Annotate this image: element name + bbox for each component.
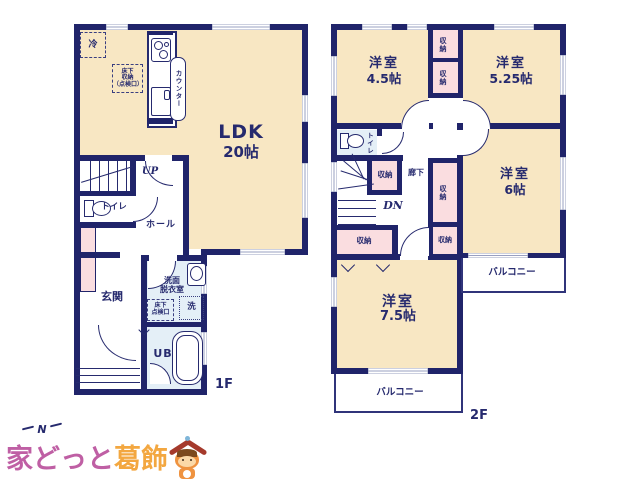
- ldk-room-area-lower: [189, 155, 302, 249]
- north-mark: N: [20, 418, 64, 436]
- fridge-space: 冷: [80, 32, 106, 58]
- balcony-label: バルコニー: [365, 388, 435, 399]
- counter: カウンター: [170, 57, 186, 121]
- washroom-label: 洗面 脱衣室: [150, 276, 194, 294]
- wall: [177, 255, 207, 261]
- storage-label: 収納: [346, 237, 382, 246]
- room-7_5-label: 洋室 7.5帖: [356, 294, 440, 325]
- stairs-2f: [338, 193, 376, 225]
- entrance-step-line: [76, 368, 140, 369]
- north-mark-stroke: [50, 423, 62, 428]
- floorplan-canvas: カウンター 冷 床下 収納 （点検口） 床下 点検口 洗 LDK 20帖 UP …: [0, 0, 640, 480]
- room-7_5-size: 7.5帖: [356, 310, 440, 325]
- wall: [74, 24, 80, 395]
- wall: [428, 222, 460, 227]
- stove-burner-icon: [154, 41, 163, 50]
- wall: [302, 24, 308, 255]
- wall: [74, 252, 120, 258]
- window: [560, 157, 566, 210]
- wall: [74, 222, 136, 228]
- wall: [428, 93, 463, 98]
- counter-label: カウンター: [173, 70, 183, 108]
- wall: [183, 155, 189, 255]
- room-6-size: 6帖: [475, 183, 555, 197]
- mascot-flower: [185, 436, 190, 441]
- storage-label: 収納: [439, 65, 447, 90]
- inspection-hatch-box: 床下 点検口: [147, 299, 174, 321]
- window: [302, 95, 308, 122]
- window: [362, 24, 392, 30]
- hallway-label: 廊下: [402, 168, 430, 177]
- window: [331, 277, 337, 307]
- fridge-label: 冷: [88, 40, 97, 50]
- toilet-label-2f: トイレ: [365, 131, 372, 155]
- door-arc-toilet: [133, 197, 158, 222]
- room-5_25-size: 5.25帖: [471, 72, 551, 86]
- stairs-1f: [82, 161, 132, 191]
- underfloor-storage-box: 床下 収納 （点検口）: [112, 64, 143, 93]
- company-logo: 家どっと葛飾: [6, 446, 168, 473]
- wall: [433, 58, 458, 62]
- washer-space-box: 洗: [179, 296, 204, 320]
- hall-label: ホール: [138, 220, 184, 230]
- storage-label: 収納: [439, 178, 447, 208]
- kitchen-unit-edge: [147, 118, 173, 124]
- entrance-step-line: [76, 382, 140, 383]
- room-6-name: 洋室: [475, 168, 555, 183]
- room-5_25-label: 洋室 5.25帖: [471, 57, 551, 86]
- toilet-bowl-icon-2f: [347, 134, 364, 148]
- window: [212, 24, 270, 30]
- ldk-name: LDK: [196, 122, 286, 144]
- washer-label: 洗: [187, 303, 196, 313]
- wall: [331, 225, 398, 230]
- inspection-hatch-label: 床下 点検口: [151, 303, 169, 316]
- floor1-label: 1F: [209, 378, 239, 393]
- stairs-down-label: DN: [380, 200, 406, 213]
- mascot-belly: [183, 470, 191, 478]
- wall: [141, 322, 207, 327]
- logo-text-secondary: 葛飾: [114, 444, 168, 475]
- window: [302, 163, 308, 218]
- ldk-label: LDK 20帖: [196, 122, 286, 161]
- window: [240, 249, 285, 255]
- north-label: N: [37, 423, 46, 436]
- storage-label: 収納: [439, 33, 447, 56]
- window: [106, 24, 128, 30]
- floor2-label: 2F: [464, 409, 494, 424]
- entrance-step-line: [76, 375, 140, 376]
- storage-label: 収納: [431, 236, 459, 244]
- stairs-up-label: UP: [138, 166, 162, 178]
- entrance-label: 玄関: [92, 291, 132, 304]
- window: [331, 56, 337, 96]
- toilet-label-1f: トイレ: [94, 203, 134, 213]
- room-5_25-name: 洋室: [471, 57, 551, 72]
- door-arc-toilet-2f: [382, 132, 404, 154]
- underfloor-storage-label: 床下 収納 （点検口）: [113, 69, 142, 89]
- door-arc-room7_5: [400, 227, 429, 256]
- wall: [428, 254, 463, 260]
- window: [494, 24, 534, 30]
- room-4_5-size: 4.5帖: [344, 72, 424, 86]
- wall: [428, 30, 433, 97]
- entrance-closet-area: [80, 226, 96, 292]
- logo-text-primary: 家どっと: [6, 444, 114, 475]
- kitchen-unit-edge: [147, 31, 173, 35]
- ldk-size: 20帖: [196, 144, 286, 161]
- north-mark-stroke: [22, 426, 34, 431]
- balcony-label: バルコニー: [477, 268, 547, 279]
- mascot-eye: [182, 459, 184, 461]
- stove-burner-icon: [164, 42, 169, 47]
- wall: [490, 123, 566, 129]
- room-4_5-label: 洋室 4.5帖: [344, 57, 424, 86]
- wall: [428, 158, 460, 163]
- mascot-face: [178, 456, 196, 467]
- wall: [458, 30, 463, 97]
- mascot-eye: [190, 459, 192, 461]
- room-7_5-name: 洋室: [356, 294, 440, 310]
- door-arc-entrance: [98, 325, 136, 361]
- room-6-label: 洋室 6帖: [475, 168, 555, 197]
- storage-label: 収納: [370, 171, 400, 180]
- window: [560, 55, 566, 95]
- wall: [331, 254, 398, 260]
- window: [407, 24, 427, 30]
- bath-label: UB: [146, 348, 180, 361]
- stove-burner-icon: [159, 50, 168, 59]
- wall: [74, 191, 136, 196]
- wall: [392, 254, 400, 260]
- room-4_5-name: 洋室: [344, 57, 424, 72]
- wall: [331, 123, 401, 129]
- mascot-icon: [164, 436, 212, 480]
- window: [331, 162, 337, 192]
